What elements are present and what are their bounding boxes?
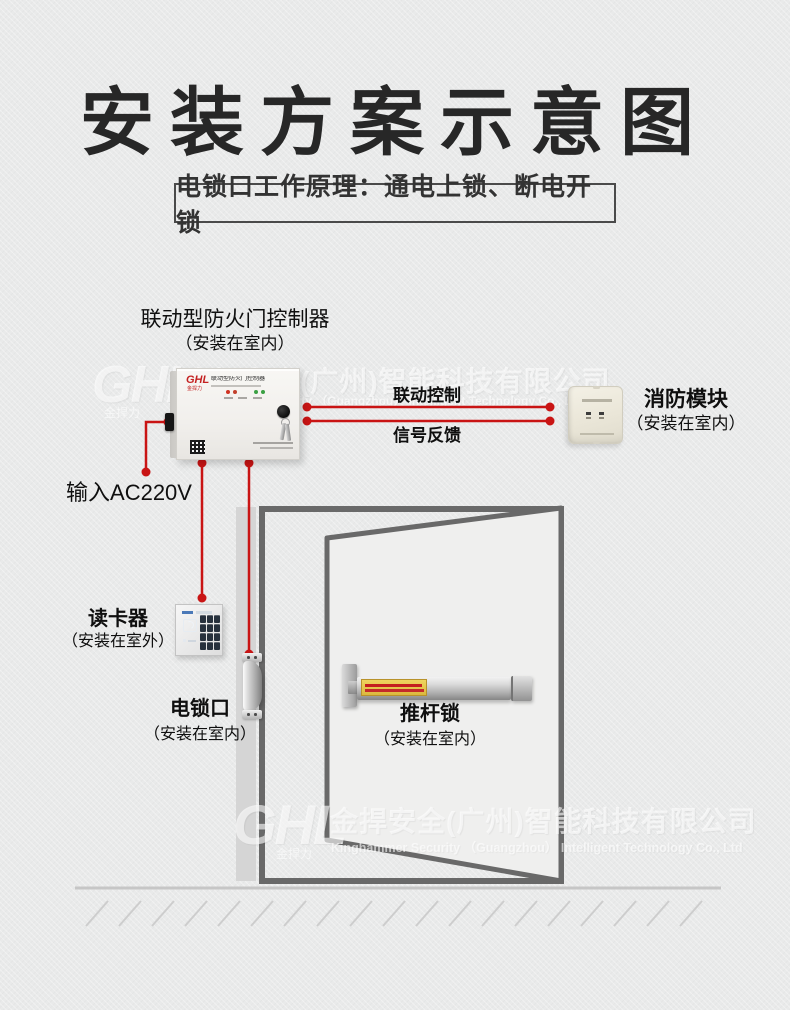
controller-sublabel: （安装在室内） (95, 334, 375, 354)
power-input-label: 输入AC220V (59, 480, 199, 505)
led-green-icon (261, 390, 265, 394)
push-bar-sublabel: （安装在室内） (350, 731, 510, 749)
fire-module-sublabel: （安装在室内） (598, 414, 774, 434)
card-reader-label: 读卡器 (48, 608, 188, 631)
led-green-icon (254, 390, 258, 394)
led-label-bar (224, 397, 233, 399)
mounting-notch (593, 441, 600, 444)
brand-logo: GHL (186, 375, 209, 386)
controller-front-panel: GHL 金捍力 联动型防火门控制器 (176, 368, 300, 460)
controller-panel-slogan-bar (211, 385, 261, 387)
fire-door-controller-device: GHL 金捍力 联动型防火门控制器 (170, 368, 298, 460)
qr-code-icon (190, 440, 205, 454)
push-bar-label: 推杆锁 (350, 703, 510, 726)
electric-lock-label: 电锁口 (130, 698, 270, 721)
key-icon (285, 424, 291, 441)
terminal-icon (586, 417, 591, 419)
brand-logo-sub: 金捍力 (187, 387, 202, 392)
led-red-icon (226, 390, 230, 394)
led-red-icon (233, 390, 237, 394)
keypad (200, 615, 220, 650)
power-switch (165, 413, 174, 431)
fine-print-bar (260, 447, 293, 449)
fine-print-bar (253, 442, 293, 444)
led-label-bar (253, 397, 262, 399)
principle-box: 电锁口工作原理：通电上锁、断电开锁 (174, 183, 616, 223)
signal-feedback-label: 信号反馈 (327, 426, 527, 446)
page-title: 安装方案示意图 (0, 86, 790, 160)
indicator-label-bar (188, 640, 196, 642)
fire-module-label: 消防模块 (598, 388, 774, 412)
controller-panel-title: 联动型防火门控制器 (211, 376, 295, 382)
installation-diagram-page: 安装方案示意图 电锁口工作原理：通电上锁、断电开锁 GHL 金捍力 金捍安全(广… (0, 0, 790, 1010)
key-lock-icon (277, 405, 290, 418)
push-bar-label-plate (361, 679, 427, 696)
led-label-bar (238, 397, 247, 399)
controller-label: 联动型防火门控制器 (95, 308, 375, 332)
linkage-control-label: 联动控制 (327, 386, 527, 406)
ground-hatch-marks (86, 901, 702, 926)
principle-text: 电锁口工作原理：通电上锁、断电开锁 (176, 167, 614, 239)
terminal-icon (586, 412, 591, 415)
push-bar-end-cap (511, 676, 532, 701)
electric-lock-sublabel: （安装在室内） (130, 726, 270, 744)
card-reader-sublabel: （安装在室外） (48, 633, 188, 651)
panel-header-bar (196, 611, 212, 614)
